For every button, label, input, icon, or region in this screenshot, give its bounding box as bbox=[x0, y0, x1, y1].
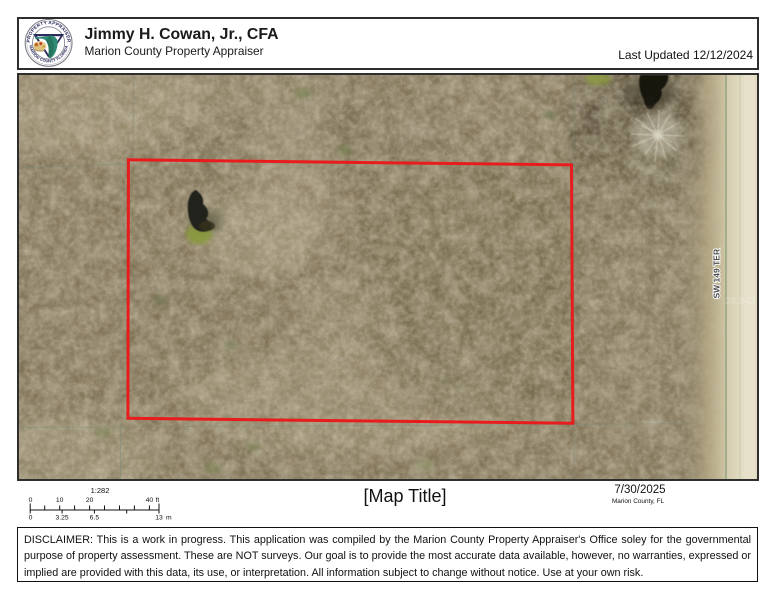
svg-text:0: 0 bbox=[29, 515, 33, 522]
svg-text:m: m bbox=[166, 515, 172, 522]
svg-text:3.25: 3.25 bbox=[55, 515, 68, 522]
svg-text:6.5: 6.5 bbox=[90, 515, 100, 522]
svg-text:10: 10 bbox=[56, 497, 64, 504]
svg-text:40: 40 bbox=[146, 497, 154, 504]
svg-text:ft: ft bbox=[156, 497, 160, 504]
svg-text:0: 0 bbox=[29, 497, 33, 504]
svg-text:SW 149 TER: SW 149 TER bbox=[712, 249, 722, 299]
svg-text:20: 20 bbox=[86, 497, 94, 504]
svg-text:38.043: 38.043 bbox=[725, 296, 756, 307]
svg-text:13: 13 bbox=[155, 515, 163, 522]
